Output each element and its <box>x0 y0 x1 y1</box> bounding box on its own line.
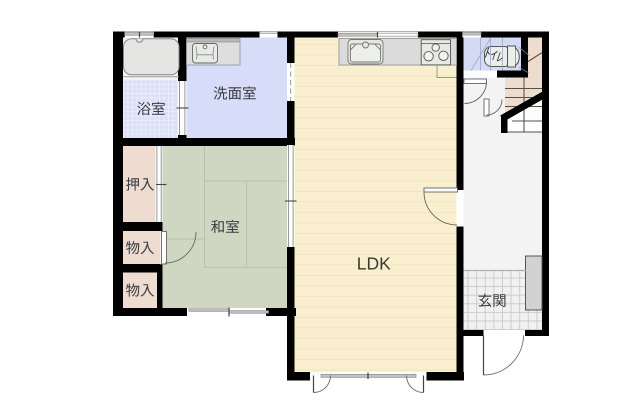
svg-text:LDK: LDK <box>357 254 391 274</box>
